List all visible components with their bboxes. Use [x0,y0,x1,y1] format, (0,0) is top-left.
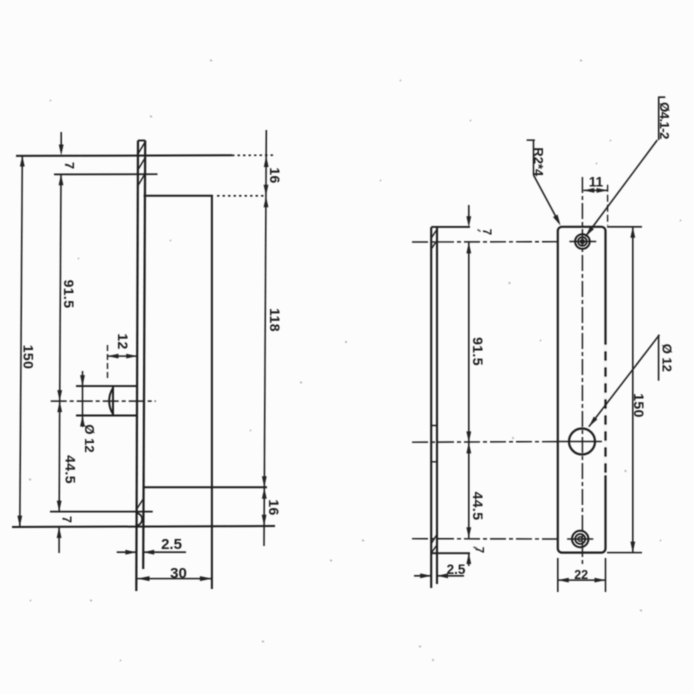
svg-text:91.5: 91.5 [61,280,77,309]
svg-text:7: 7 [60,516,74,523]
svg-text:Ø 12: Ø 12 [82,424,97,452]
svg-text:2.5: 2.5 [161,536,182,553]
svg-text:16: 16 [266,499,282,515]
svg-text:22: 22 [574,568,588,582]
svg-text:7: 7 [62,162,77,169]
svg-text:150: 150 [21,345,37,370]
svg-text:2.5: 2.5 [447,562,466,577]
svg-text:R2*4: R2*4 [531,147,546,177]
svg-text:30: 30 [170,565,187,582]
svg-text:44.5: 44.5 [63,455,79,484]
svg-text:12: 12 [115,333,131,349]
svg-text:16: 16 [267,167,283,183]
svg-text:91.5: 91.5 [470,337,486,366]
svg-text:150: 150 [631,393,647,418]
svg-text:Ø 12: Ø 12 [660,344,675,372]
svg-text:Ø4.1-2: Ø4.1-2 [657,102,672,139]
svg-text:11: 11 [589,175,604,190]
svg-text:44.5: 44.5 [470,492,486,521]
svg-text:7: 7 [480,229,492,235]
svg-text:118: 118 [267,308,283,332]
